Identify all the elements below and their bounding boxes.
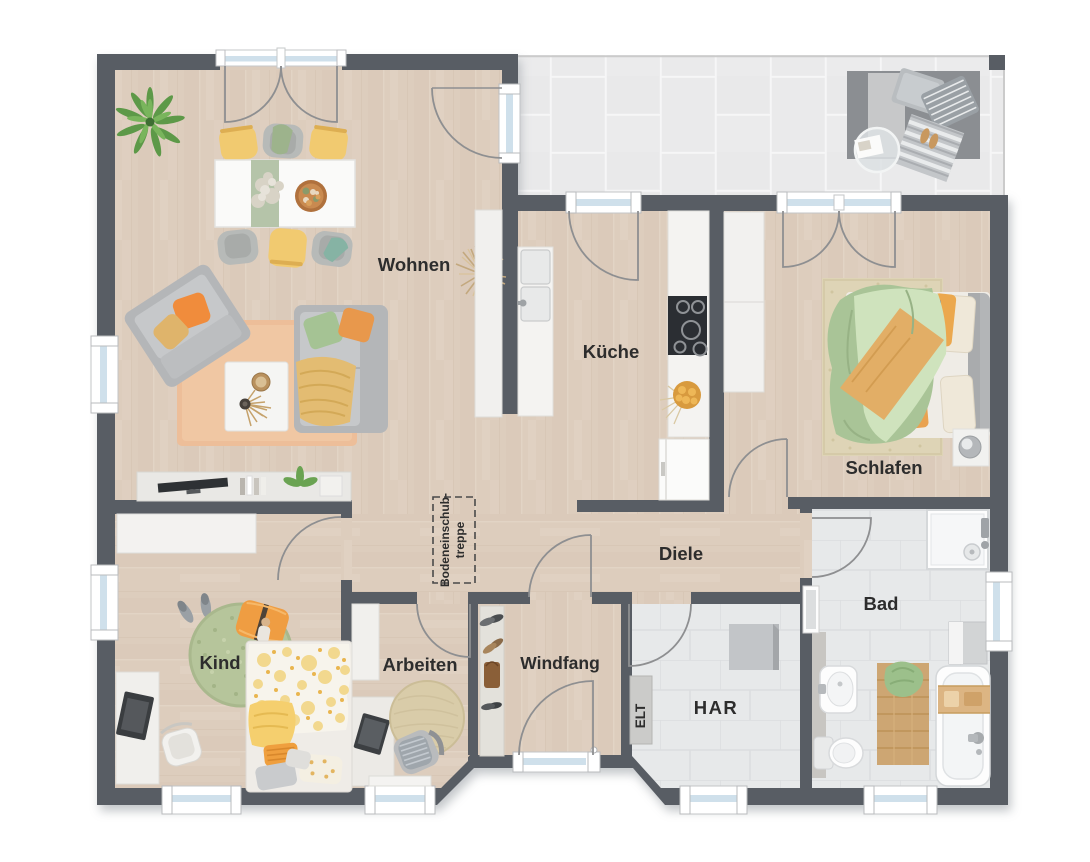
svg-text:Arbeiten: Arbeiten xyxy=(382,654,457,675)
svg-text:Bad: Bad xyxy=(864,593,899,614)
svg-text:HAR: HAR xyxy=(694,697,739,718)
svg-text:Diele: Diele xyxy=(659,543,703,564)
svg-text:Küche: Küche xyxy=(583,341,640,362)
svg-text:ELT: ELT xyxy=(633,703,648,728)
svg-text:Schlafen: Schlafen xyxy=(845,457,922,478)
svg-text:treppe: treppe xyxy=(453,521,467,558)
svg-text:Wohnen: Wohnen xyxy=(378,254,451,275)
svg-text:Bodeneinschub-: Bodeneinschub- xyxy=(438,493,452,587)
svg-text:Windfang: Windfang xyxy=(520,653,600,673)
svg-text:Kind: Kind xyxy=(199,652,240,673)
